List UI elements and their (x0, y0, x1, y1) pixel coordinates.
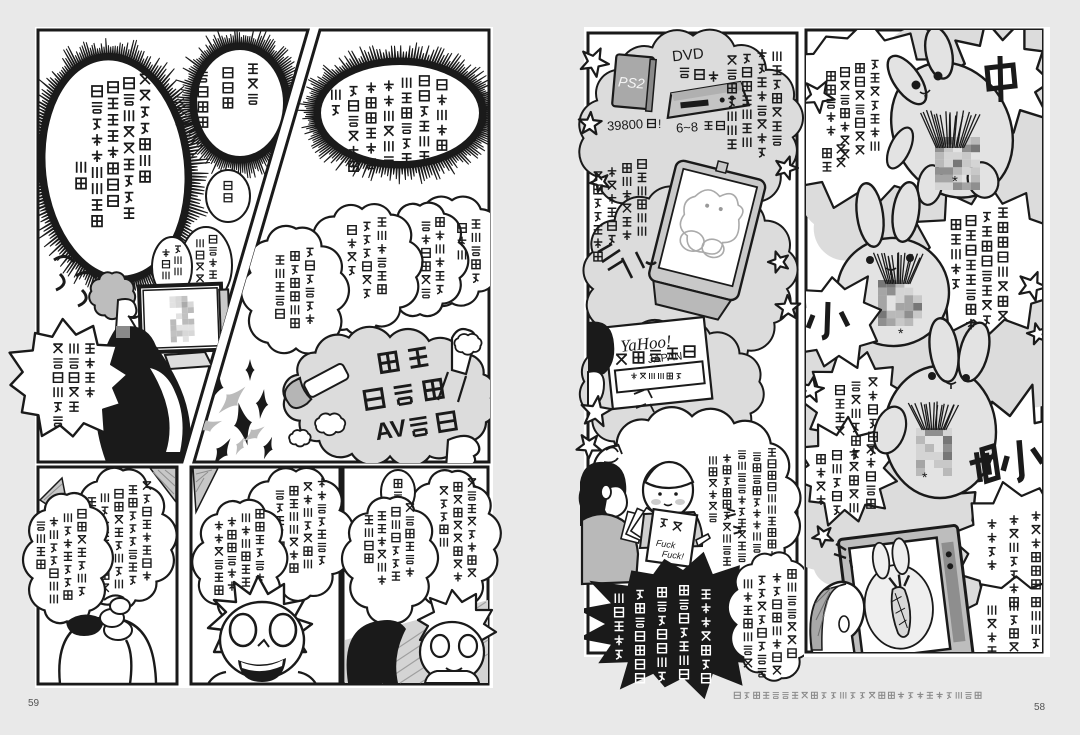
svg-text:59: 59 (28, 698, 40, 709)
svg-text:*: * (952, 173, 958, 190)
svg-text:AV: AV (373, 415, 408, 447)
svg-text:DVD: DVD (671, 45, 704, 65)
svg-text:39800: 39800 (606, 116, 643, 133)
svg-text:58: 58 (1034, 702, 1046, 713)
svg-text:6~8: 6~8 (676, 119, 699, 136)
svg-text:*: * (922, 469, 928, 485)
svg-text:PS2: PS2 (617, 73, 645, 91)
svg-text:!: ! (658, 117, 661, 131)
svg-text:*: * (898, 325, 904, 341)
